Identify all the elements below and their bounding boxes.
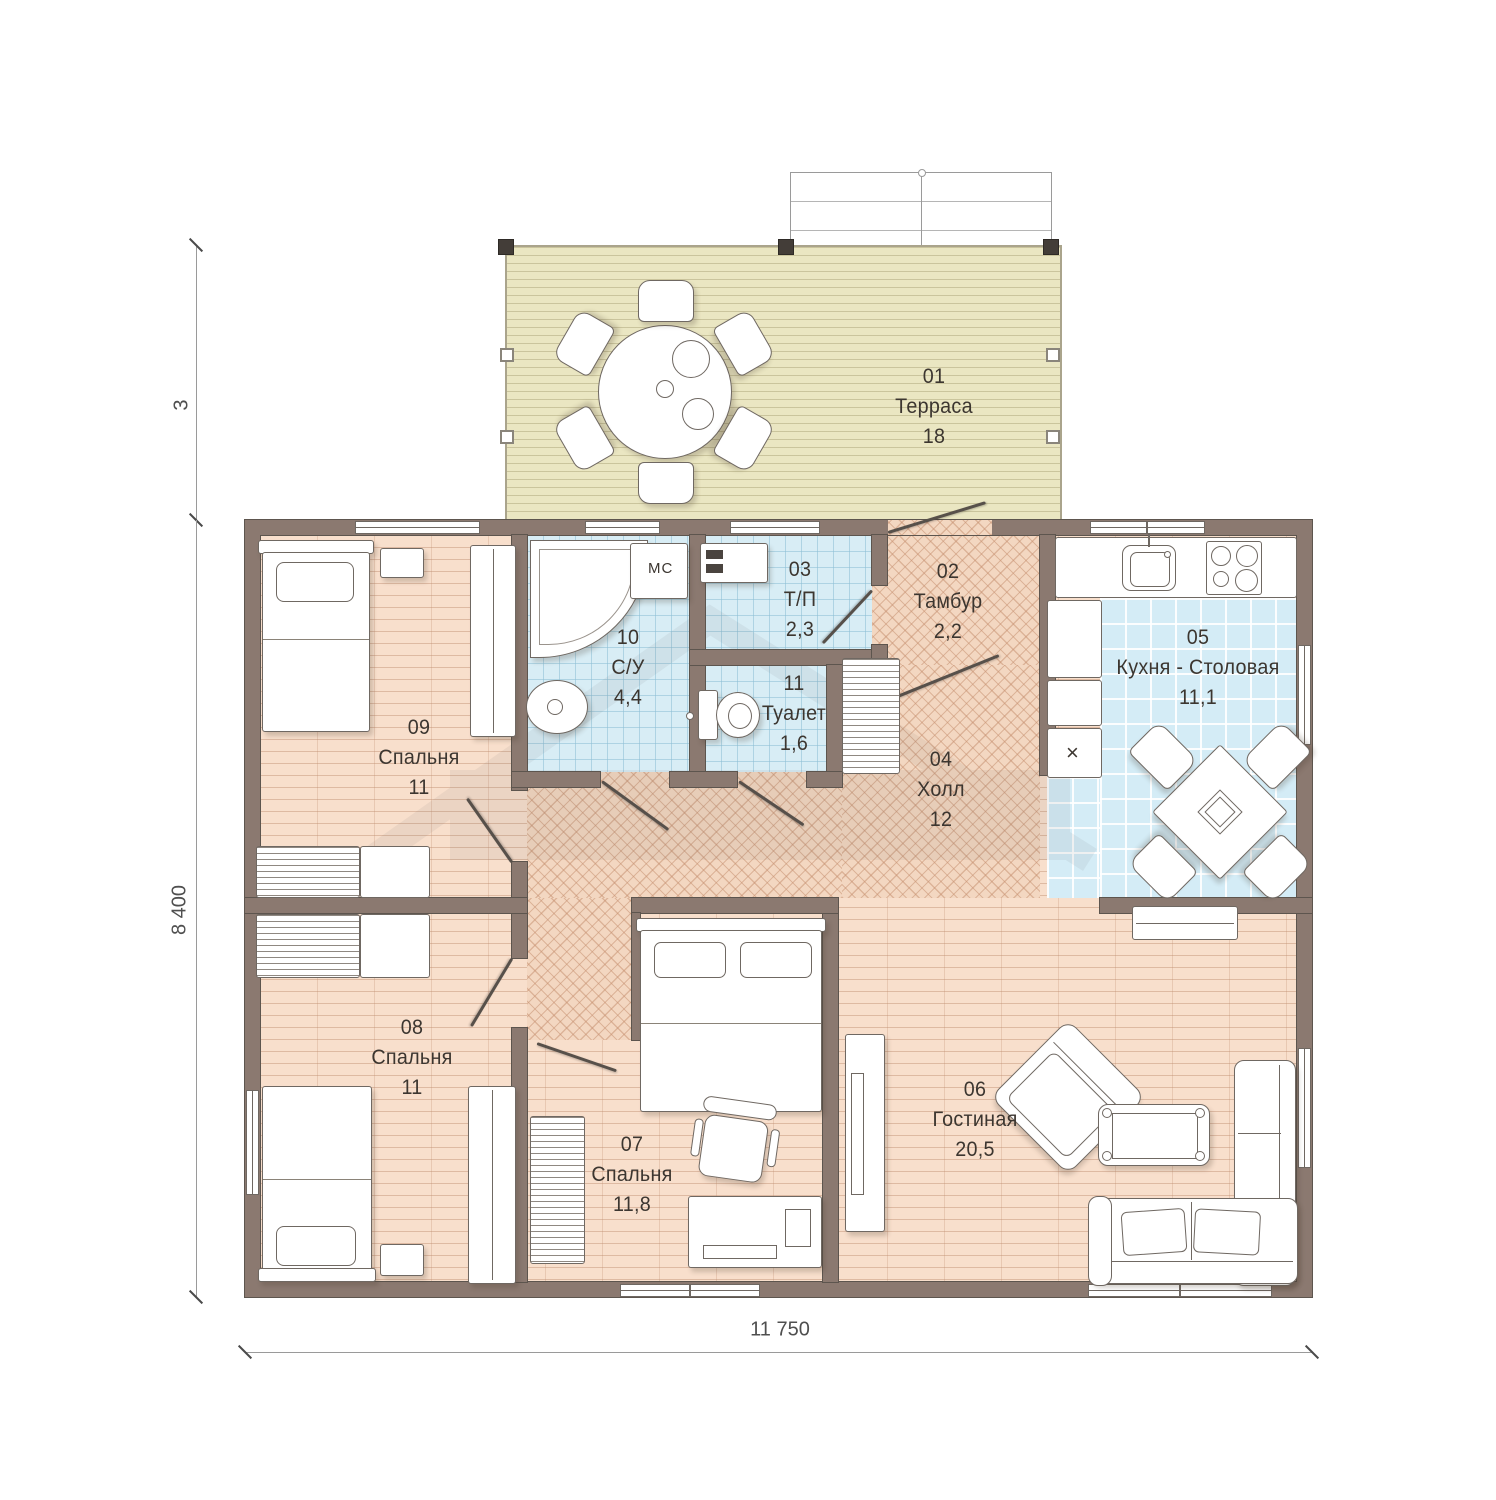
office-chair <box>686 1094 785 1193</box>
wall <box>827 665 842 772</box>
wardrobe <box>468 1086 516 1284</box>
kitchen-cabinet <box>1047 600 1102 678</box>
stove <box>1206 541 1262 595</box>
pillow <box>654 942 726 978</box>
sideboard <box>1132 906 1238 940</box>
room-label-living: 06Гостиная20,5 <box>932 1075 1017 1165</box>
sink <box>526 680 588 734</box>
dresser <box>256 846 360 898</box>
wall <box>807 772 842 787</box>
dresser <box>360 914 430 978</box>
dimension-line-height <box>196 520 197 1297</box>
wardrobe <box>470 545 516 737</box>
dimension-overall-width: 11 750 <box>750 1319 810 1342</box>
toilet-button <box>686 712 694 720</box>
window-mullion <box>1179 1284 1181 1297</box>
terrace-post-icon <box>779 240 793 254</box>
window-mullion <box>689 1284 691 1297</box>
terrace-post-icon <box>1046 348 1060 362</box>
kitchen-cabinet <box>1047 680 1102 726</box>
wall <box>512 913 527 958</box>
sofa-pillow <box>1121 1208 1188 1256</box>
coffee-table <box>1098 1104 1210 1166</box>
wall <box>823 913 838 1282</box>
room-label-bedroom-07: 07Спальня11,8 <box>591 1130 672 1220</box>
terrace-post-icon <box>1046 430 1060 444</box>
room-label-techroom: 03Т/П2,3 <box>784 555 817 645</box>
toilet-bowl <box>716 692 760 738</box>
wall <box>632 913 640 1040</box>
kitchen-tap <box>1148 533 1150 547</box>
terrace-post-icon <box>500 430 514 444</box>
room-label-toilet: 11Туалет1,6 <box>762 669 826 759</box>
window <box>1298 1048 1311 1168</box>
sofa-armrest <box>1088 1196 1112 1286</box>
room-label-kitchen: 05Кухня - Столовая11,1 <box>1116 623 1279 713</box>
tech-unit <box>700 543 768 583</box>
window <box>585 521 660 534</box>
sofa-pillow <box>1193 1208 1261 1255</box>
terrace-deck <box>505 245 1062 526</box>
wall <box>512 862 527 898</box>
dimension-line-width <box>245 1352 1312 1353</box>
toilet-tank <box>698 690 718 740</box>
pillow <box>276 1226 356 1266</box>
hall-closet <box>842 658 900 774</box>
desk <box>688 1196 822 1268</box>
window <box>730 521 820 534</box>
terrace-chair <box>638 280 694 322</box>
dimension-overall-height: 8 400 <box>169 885 192 935</box>
room-label-bedroom-09: 09Спальня11 <box>378 713 459 803</box>
floor-plan: МС × <box>0 0 1496 1500</box>
pillow <box>740 942 812 978</box>
wall <box>632 898 838 913</box>
terrace-chair <box>638 462 694 504</box>
dresser <box>360 846 430 898</box>
room-label-hall: 04Холл12 <box>917 745 965 835</box>
terrace-table-vase <box>656 380 674 398</box>
dimension-terrace-depth: 3 <box>171 399 194 410</box>
terrace-post-icon <box>500 348 514 362</box>
bed-headboard <box>258 1268 376 1282</box>
wall <box>512 772 600 787</box>
tv-stand <box>845 1034 885 1232</box>
terrace-table-plate <box>672 340 710 378</box>
dimension-line-terrace <box>196 245 197 520</box>
room-label-bedroom-08: 08Спальня11 <box>371 1013 452 1103</box>
wall <box>872 535 887 585</box>
nightstand <box>380 1244 424 1276</box>
terrace-table-plate <box>682 398 714 430</box>
shelving-unit <box>530 1116 585 1264</box>
dresser <box>256 914 360 978</box>
washing-machine-label: МС <box>648 560 673 577</box>
wall <box>245 898 527 913</box>
fridge-mark: × <box>1066 740 1080 766</box>
terrace-post-icon <box>1044 240 1058 254</box>
pillow <box>276 562 354 602</box>
nightstand <box>380 548 424 578</box>
room-label-tambour: 02Тамбур2,2 <box>914 557 983 647</box>
room-label-terrace: 01Терраса18 <box>895 362 973 452</box>
window <box>355 521 480 534</box>
window <box>246 1090 259 1195</box>
terrace-post-icon <box>499 240 513 254</box>
wall <box>670 772 737 787</box>
kitchen-sink <box>1122 545 1176 591</box>
window <box>1298 645 1311 745</box>
room-label-bathroom: 10С/У4,4 <box>611 623 644 713</box>
